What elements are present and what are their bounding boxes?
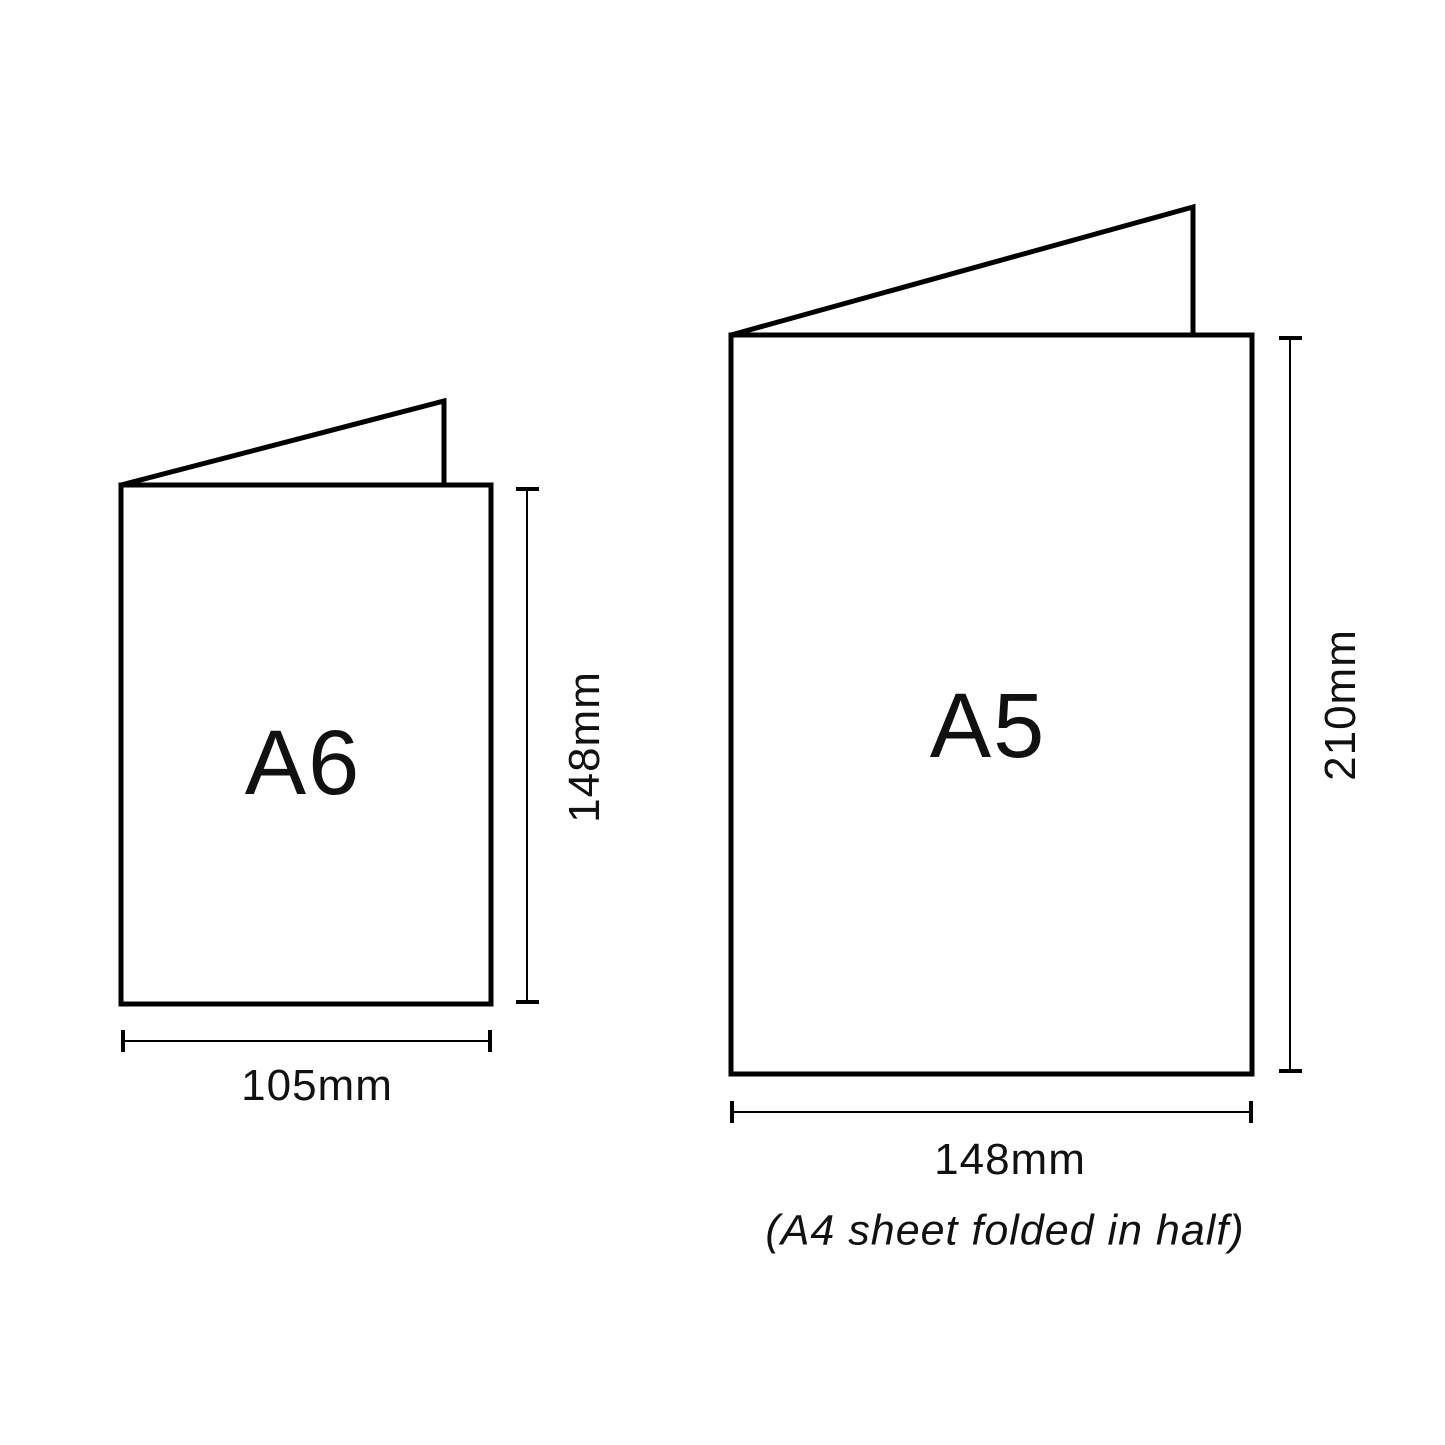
- a6-height-label: 148mm: [563, 671, 607, 823]
- a5-width-dimension: [732, 1101, 1251, 1123]
- a4-fold-note: (A4 sheet folded in half): [765, 1210, 1244, 1253]
- folded-card-size-diagram: A6 148mm 105mm A5 210mm 148mm (A4 sheet …: [0, 0, 1445, 1445]
- a5-card-fold: [731, 207, 1193, 335]
- a5-width-label: 148mm: [934, 1138, 1086, 1182]
- a6-width-label: 105mm: [241, 1064, 393, 1108]
- a6-card-fold: [121, 401, 444, 485]
- a5-card: [731, 207, 1302, 1123]
- a5-height-label: 210mm: [1319, 629, 1363, 781]
- a6-height-dimension: [516, 489, 539, 1002]
- a6-label: A6: [245, 717, 362, 809]
- a5-height-dimension: [1279, 338, 1302, 1071]
- a6-width-dimension: [123, 1030, 490, 1052]
- a5-label: A5: [930, 680, 1047, 772]
